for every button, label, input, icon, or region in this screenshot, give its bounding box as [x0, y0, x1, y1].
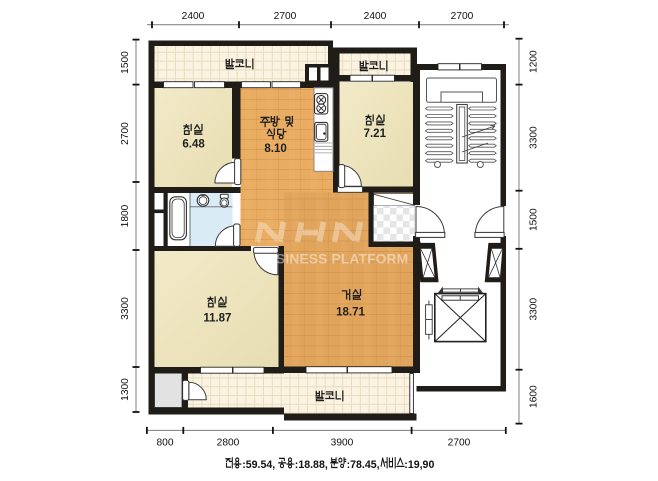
svg-text:7.21: 7.21	[364, 128, 387, 140]
svg-text:3900: 3900	[331, 438, 354, 449]
svg-text::19,90: :19,90	[404, 459, 434, 471]
svg-text::18.88,: :18.88,	[295, 459, 328, 471]
svg-text:1200: 1200	[529, 50, 540, 73]
svg-text:1300: 1300	[120, 378, 131, 401]
svg-text:18.71: 18.71	[336, 307, 365, 319]
svg-text::59.54,: :59.54,	[242, 459, 275, 471]
svg-text:2700: 2700	[120, 122, 131, 145]
svg-text:2800: 2800	[217, 438, 240, 449]
svg-text:8.10: 8.10	[264, 143, 286, 155]
svg-text:1500: 1500	[120, 51, 131, 74]
svg-text:SINESS PLATFORM: SINESS PLATFORM	[276, 252, 408, 267]
svg-text:2700: 2700	[451, 11, 474, 22]
svg-text:2400: 2400	[182, 11, 205, 22]
svg-text:1600: 1600	[529, 385, 540, 408]
svg-text:800: 800	[157, 438, 174, 449]
svg-text::78.45,: :78.45,	[347, 459, 380, 471]
svg-text:2700: 2700	[274, 11, 297, 22]
svg-text:3300: 3300	[529, 126, 540, 149]
svg-text:1800: 1800	[120, 204, 131, 227]
svg-text:3300: 3300	[529, 298, 540, 321]
svg-text:11.87: 11.87	[203, 313, 231, 325]
svg-text:6.48: 6.48	[182, 139, 205, 151]
svg-text:2700: 2700	[448, 438, 471, 449]
svg-text:1500: 1500	[529, 208, 540, 231]
svg-text:2400: 2400	[364, 11, 387, 22]
svg-text:3300: 3300	[120, 297, 131, 320]
